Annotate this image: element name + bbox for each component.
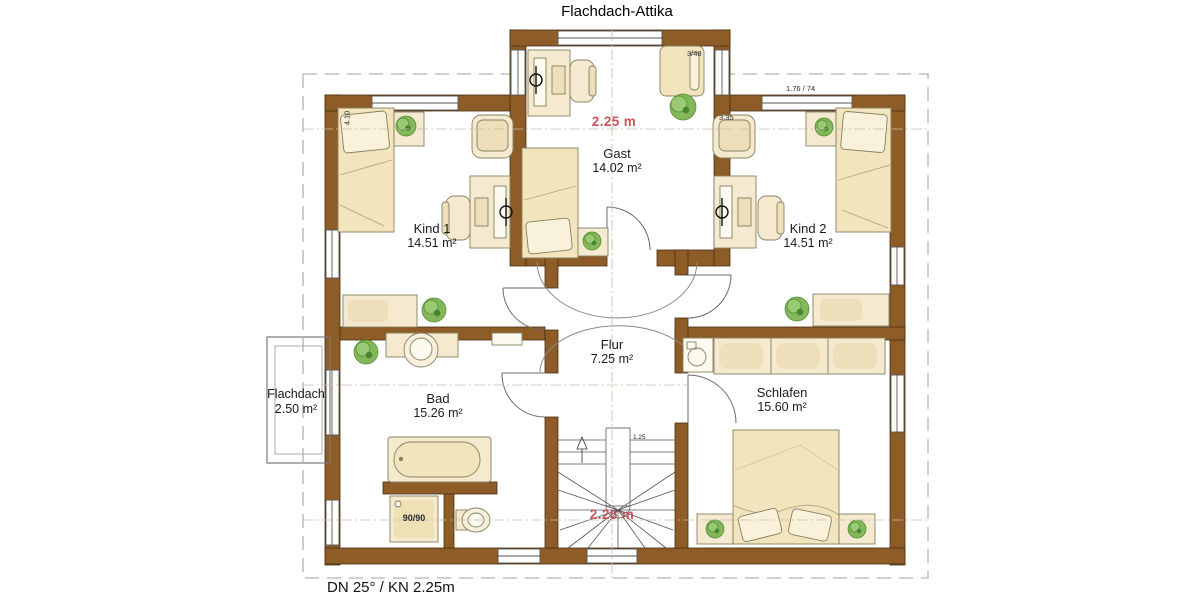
room-name: Bad bbox=[413, 391, 462, 406]
plant-icon bbox=[848, 520, 866, 538]
dim-gast-bed: 3/48 bbox=[687, 49, 702, 58]
plant-icon bbox=[706, 520, 724, 538]
plant-icon bbox=[422, 298, 446, 322]
plant-icon bbox=[815, 118, 833, 136]
shower-size-label: 90/90 bbox=[403, 513, 426, 523]
window-bottom-1 bbox=[498, 549, 540, 563]
armchair-icon bbox=[472, 115, 513, 158]
room-name: Kind 1 bbox=[407, 221, 456, 236]
desk-chair-icon bbox=[758, 196, 784, 240]
room-name: Schlafen bbox=[757, 385, 808, 400]
ceiling-height-gast: 2.25 m bbox=[592, 114, 636, 129]
bed-icon bbox=[338, 108, 394, 232]
flachdach-door bbox=[326, 370, 339, 435]
room-name: Flur bbox=[591, 337, 633, 352]
plant-icon bbox=[785, 297, 809, 321]
window-bad-left bbox=[326, 500, 339, 545]
room-label-bad: Bad 15.26 m² bbox=[413, 391, 462, 421]
room-label-flachdach: Flachdach 2.50 m² bbox=[267, 387, 325, 417]
room-area: 14.51 m² bbox=[407, 236, 456, 251]
window-gast-left bbox=[511, 50, 525, 95]
room-name: Kind 2 bbox=[783, 221, 832, 236]
plant-icon bbox=[583, 232, 601, 250]
desk-icon bbox=[470, 176, 510, 248]
bed-icon bbox=[836, 108, 891, 232]
window-gast-top bbox=[558, 31, 662, 45]
room-label-kind1: Kind 1 14.51 m² bbox=[407, 221, 456, 251]
dim-kind2-window: 1.76 / 74 bbox=[786, 84, 815, 93]
room-name: Flachdach bbox=[267, 387, 325, 402]
room-area: 15.60 m² bbox=[757, 400, 808, 415]
plant-icon bbox=[354, 340, 378, 364]
ceiling-height-stairs: 2.25 m bbox=[590, 507, 634, 522]
bathtub-icon bbox=[388, 437, 491, 482]
bed-icon bbox=[522, 148, 578, 258]
sideboard-icon bbox=[343, 295, 417, 327]
stair-dim-label: 1.25 bbox=[633, 434, 646, 441]
shelf-icon bbox=[492, 333, 522, 345]
plant-icon bbox=[670, 94, 696, 120]
washing-machine-icon bbox=[683, 338, 713, 372]
double-bed-icon bbox=[733, 430, 839, 544]
room-area: 14.02 m² bbox=[592, 161, 641, 176]
wardrobe-icon bbox=[714, 338, 885, 374]
window-kind2-right bbox=[891, 247, 904, 285]
dim-kind2-wall: 3.35 bbox=[719, 113, 734, 122]
sideboard-icon bbox=[813, 294, 889, 326]
room-area: 14.51 m² bbox=[783, 236, 832, 251]
room-label-flur: Flur 7.25 m² bbox=[591, 337, 633, 367]
dim-left-wall: 4.10 bbox=[343, 111, 352, 126]
room-label-gast: Gast 14.02 m² bbox=[592, 146, 641, 176]
desk-icon bbox=[528, 50, 570, 116]
window-schlafen-right bbox=[891, 375, 904, 432]
room-area: 2.50 m² bbox=[267, 402, 325, 417]
plant-icon bbox=[396, 116, 416, 136]
room-label-kind2: Kind 2 14.51 m² bbox=[783, 221, 832, 251]
floor-plan-page: Flachdach-Attika Gast 14.02 m² Kind 1 14… bbox=[0, 0, 1200, 600]
footer-note: DN 25° / KN 2.25m bbox=[327, 579, 455, 596]
desk-icon bbox=[714, 176, 756, 248]
room-name: Gast bbox=[592, 146, 641, 161]
desk-chair-icon bbox=[570, 60, 596, 102]
room-area: 15.26 m² bbox=[413, 406, 462, 421]
room-area: 7.25 m² bbox=[591, 352, 633, 367]
room-label-schlafen: Schlafen 15.60 m² bbox=[757, 385, 808, 415]
plan-title: Flachdach-Attika bbox=[561, 3, 673, 20]
window-gast-right bbox=[715, 50, 729, 95]
window-kind1-left bbox=[326, 230, 339, 278]
